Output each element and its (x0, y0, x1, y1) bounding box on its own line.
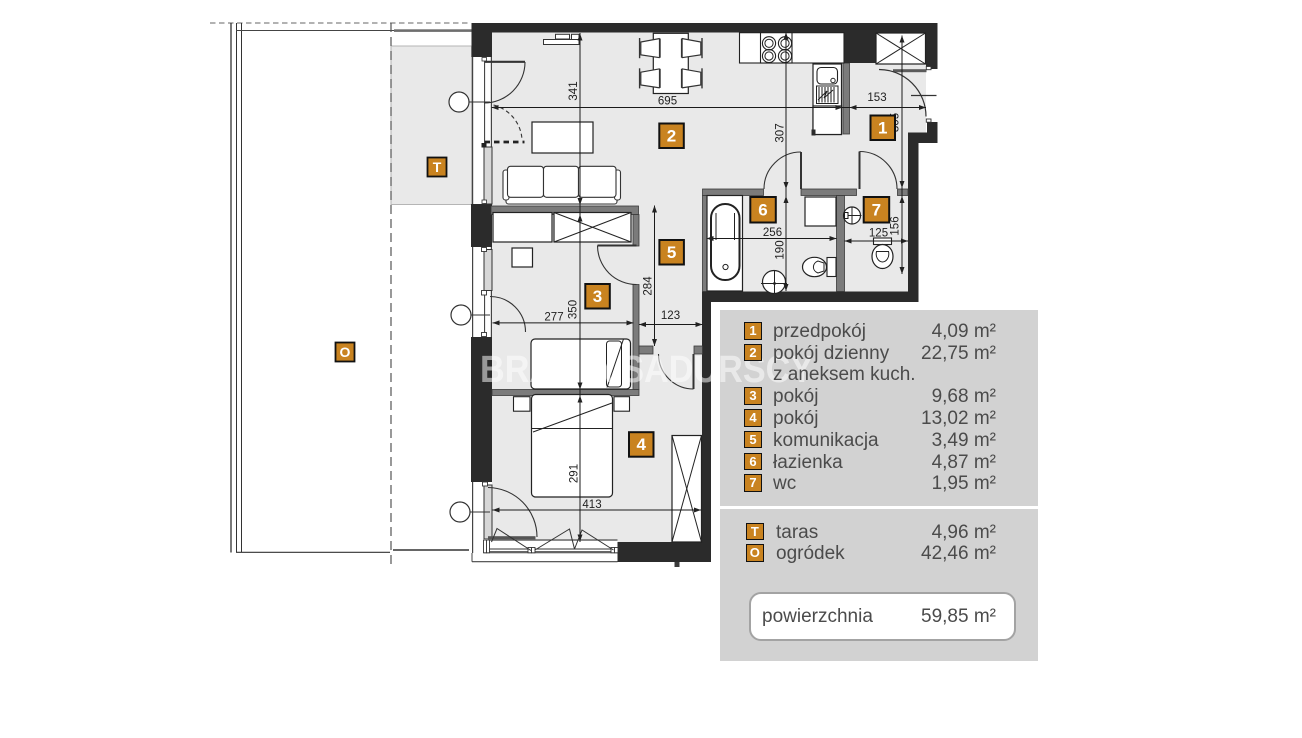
svg-text:153: 153 (867, 92, 886, 104)
svg-text:123: 123 (661, 310, 680, 322)
svg-text:2: 2 (667, 127, 676, 146)
svg-text:O: O (340, 344, 351, 360)
svg-text:256: 256 (763, 227, 782, 239)
svg-text:T: T (433, 159, 442, 175)
svg-text:125: 125 (869, 228, 888, 240)
svg-text:284: 284 (643, 276, 655, 296)
svg-text:695: 695 (658, 96, 677, 108)
svg-text:277: 277 (544, 312, 563, 324)
svg-text:190: 190 (775, 240, 787, 259)
svg-text:6: 6 (758, 201, 767, 220)
svg-text:413: 413 (582, 499, 601, 511)
svg-text:5: 5 (667, 243, 676, 262)
svg-text:7: 7 (872, 201, 881, 220)
svg-text:307: 307 (775, 123, 787, 142)
svg-text:350: 350 (568, 300, 580, 319)
svg-text:341: 341 (568, 81, 580, 100)
svg-text:156: 156 (890, 216, 902, 235)
svg-text:291: 291 (569, 464, 581, 483)
svg-text:1: 1 (878, 119, 887, 138)
svg-text:3: 3 (593, 287, 602, 306)
svg-text:4: 4 (636, 435, 646, 454)
